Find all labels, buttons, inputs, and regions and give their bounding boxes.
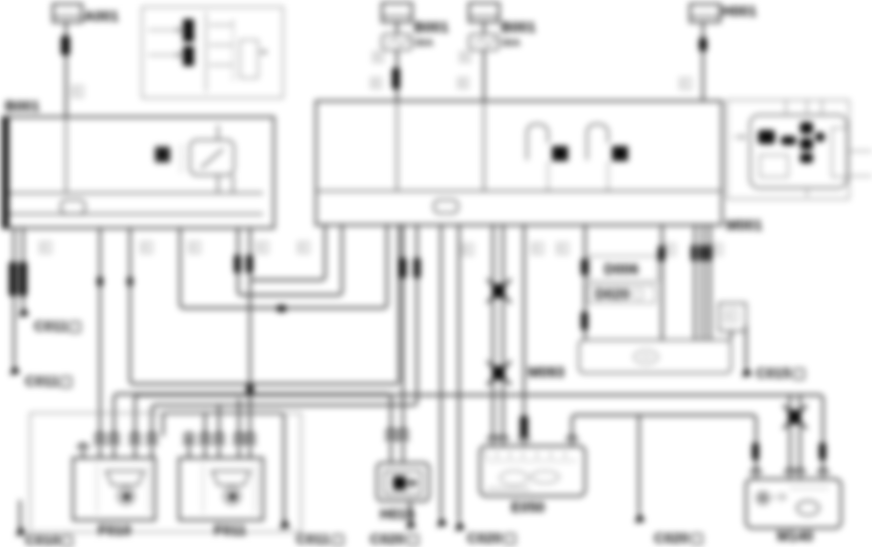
svg-text:B001: B001 bbox=[501, 20, 536, 36]
svg-text:C020: C020 bbox=[467, 531, 502, 547]
svg-text:K: K bbox=[465, 246, 471, 255]
svg-text:30A: 30A bbox=[415, 38, 433, 49]
svg-text:K: K bbox=[463, 53, 469, 62]
svg-text:C010: C010 bbox=[25, 533, 60, 547]
svg-text:K: K bbox=[728, 312, 734, 321]
svg-text:H015: H015 bbox=[380, 507, 415, 523]
svg-text:K: K bbox=[75, 88, 81, 97]
svg-text:A001: A001 bbox=[84, 9, 119, 25]
svg-text:H001: H001 bbox=[722, 4, 757, 20]
svg-text:K: K bbox=[260, 244, 266, 253]
svg-text:K: K bbox=[714, 246, 720, 255]
svg-text:C020: C020 bbox=[654, 531, 689, 547]
svg-text:K: K bbox=[144, 244, 150, 253]
svg-text:C020: C020 bbox=[370, 532, 405, 547]
svg-text:M093: M093 bbox=[528, 365, 564, 381]
svg-text:K: K bbox=[535, 245, 541, 254]
svg-text:F011: F011 bbox=[214, 523, 246, 539]
svg-text:F010: F010 bbox=[98, 523, 131, 539]
svg-text:B001: B001 bbox=[414, 20, 449, 36]
svg-text:K: K bbox=[192, 244, 198, 253]
svg-text:C015: C015 bbox=[756, 366, 791, 382]
svg-text:C011: C011 bbox=[296, 532, 330, 547]
svg-text:E050: E050 bbox=[511, 500, 545, 516]
svg-text:K: K bbox=[301, 244, 307, 253]
svg-text:C011: C011 bbox=[34, 319, 68, 335]
svg-text:C011: C011 bbox=[25, 374, 59, 390]
svg-text:K: K bbox=[560, 245, 566, 254]
svg-text:M001: M001 bbox=[726, 218, 762, 234]
svg-text:K: K bbox=[376, 53, 382, 62]
svg-text:D006: D006 bbox=[604, 262, 639, 278]
svg-text:30A: 30A bbox=[502, 38, 520, 49]
svg-text:K: K bbox=[374, 79, 380, 88]
svg-text:K: K bbox=[461, 79, 467, 88]
svg-text:K: K bbox=[667, 246, 673, 255]
svg-text:B001: B001 bbox=[5, 99, 40, 115]
svg-text:K: K bbox=[683, 80, 689, 89]
svg-text:D020: D020 bbox=[595, 287, 630, 303]
svg-text:K: K bbox=[43, 244, 49, 253]
svg-text:M140: M140 bbox=[777, 529, 813, 545]
